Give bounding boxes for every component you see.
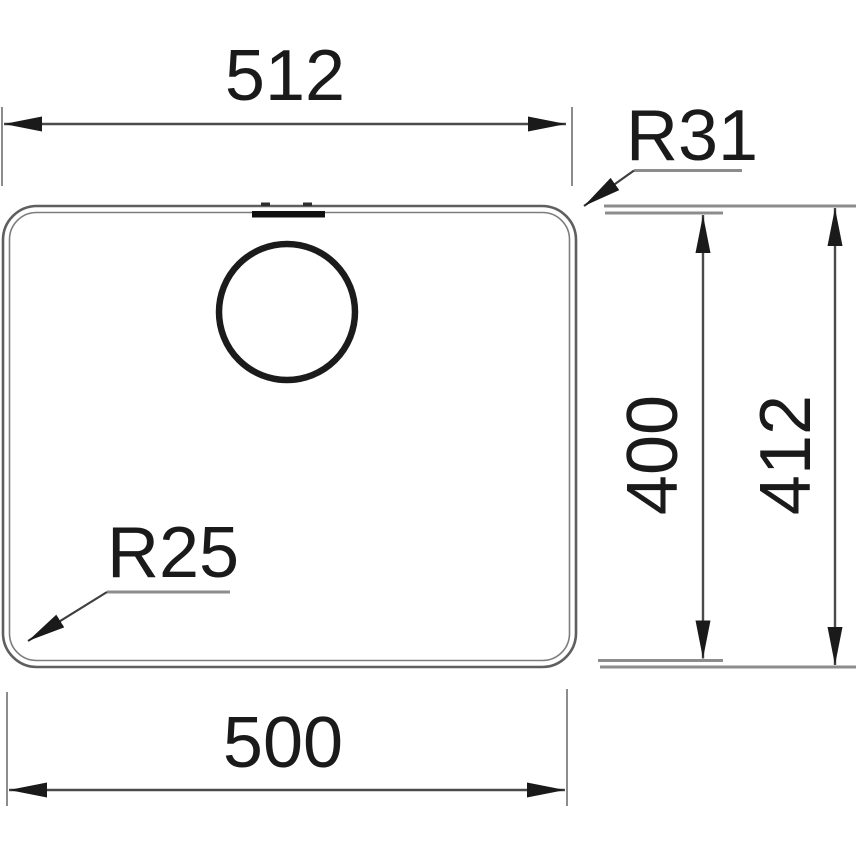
overflow-tick-right — [303, 203, 312, 207]
drawing-canvas: 512 R31 400 412 R25 500 — [0, 0, 860, 860]
outer-height-value: 412 — [746, 395, 826, 515]
callout-bottom-left-radius: R25 — [28, 513, 239, 641]
sink-body — [3, 203, 576, 668]
leader-line-r25 — [28, 592, 107, 641]
bottom-width-value: 500 — [223, 703, 343, 783]
inner-height-value: 400 — [613, 395, 693, 515]
sink-inner-bowl-outline — [10, 213, 570, 661]
dimension-bottom-width: 500 — [7, 689, 567, 806]
dimension-inner-height: 400 — [598, 213, 723, 661]
callout-top-right-radius: R31 — [584, 96, 758, 206]
sink-outer-rim-outline — [3, 206, 576, 667]
top-right-radius-value: R31 — [626, 96, 758, 176]
overflow-slot — [252, 211, 325, 218]
bottom-left-radius-value: R25 — [107, 513, 239, 593]
drain-hole — [219, 244, 355, 380]
leader-line-r31 — [584, 171, 634, 207]
sink-dimension-drawing: 512 R31 400 412 R25 500 — [0, 0, 860, 860]
dimension-top-width: 512 — [2, 36, 572, 186]
overflow-tick-left — [261, 203, 270, 207]
top-width-value: 512 — [225, 36, 345, 116]
